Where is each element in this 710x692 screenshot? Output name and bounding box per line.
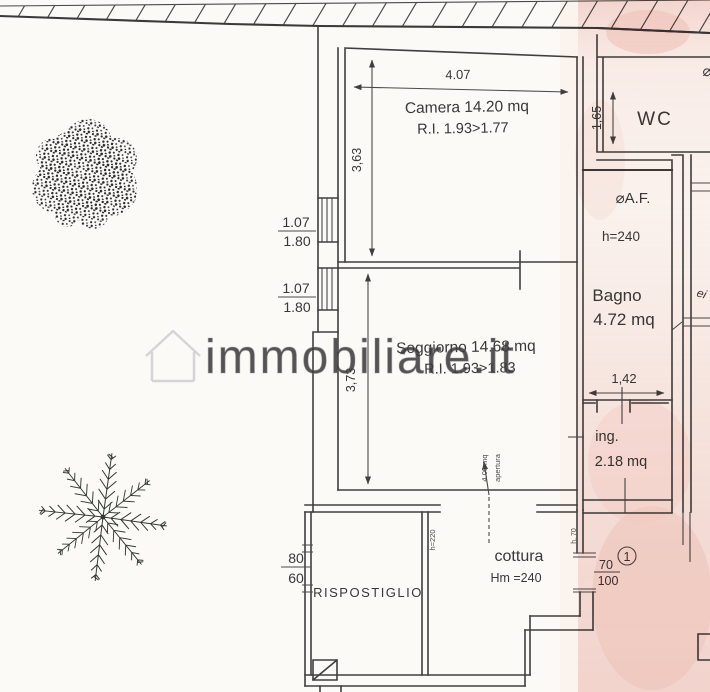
- camera-ri-label: R.I. 1.93>1.77: [417, 120, 509, 138]
- window-1-top: 1.07: [282, 214, 309, 230]
- dim-camera-width: 4.07: [445, 67, 471, 82]
- opening-note-line1: apertura: [493, 453, 502, 482]
- left-door-top: 80: [288, 550, 304, 566]
- window-2-bottom: 1.80: [283, 299, 310, 315]
- ripostiglio-label: RISPOSTIGLIO: [313, 585, 423, 600]
- floor-plan-scan: Camera 14.20 mq R.I. 1.93>1.77 Soggiorno…: [0, 0, 710, 692]
- cottura-h-label: Hm =240: [490, 571, 541, 585]
- opening-note-line2: 4.00 mq: [480, 454, 489, 481]
- floor-plan-svg: Camera 14.20 mq R.I. 1.93>1.77 Soggiorno…: [0, 0, 710, 692]
- window-2-top: 1.07: [282, 280, 309, 296]
- watermark-text: immobiliare.it: [205, 331, 516, 384]
- left-door-bottom: 60: [288, 570, 304, 586]
- camera-label: Camera 14.20 mq: [405, 98, 529, 117]
- dim-camera-height: 3,63: [350, 148, 364, 172]
- scan-tint: [560, 0, 710, 692]
- cottura-label: cottura: [495, 548, 544, 565]
- window-1-bottom: 1.80: [283, 233, 310, 249]
- door-height-note: h=220: [428, 529, 437, 550]
